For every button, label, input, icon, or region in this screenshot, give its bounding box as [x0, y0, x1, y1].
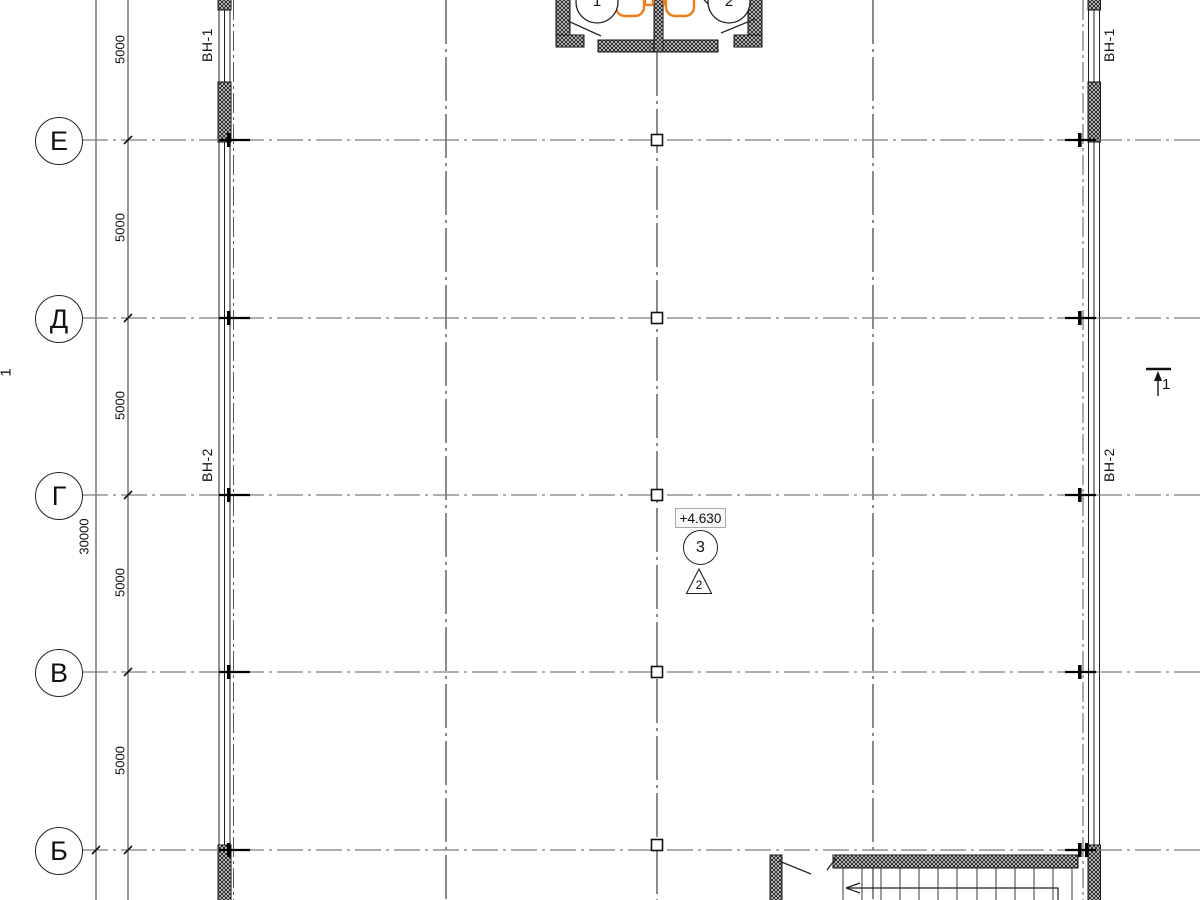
entry-detail-number-1: 1: [588, 0, 606, 9]
elevation-marker: +4.630: [675, 508, 726, 528]
axis-bubble-e: Е: [35, 117, 83, 165]
axis-bubble-g: Г: [35, 472, 83, 520]
dim-bay-4: 5000: [114, 553, 127, 613]
axis-label: Г: [52, 481, 67, 512]
axis-label: Е: [50, 126, 68, 157]
floor-plan-drawing: [0, 0, 1200, 900]
axis-label: В: [50, 658, 68, 689]
dim-bay-2: 5000: [114, 198, 127, 258]
revision-number: 2: [691, 579, 707, 591]
elevation-value: +4.630: [680, 511, 722, 526]
dim-bay-1: 5000: [114, 20, 127, 80]
window-tag-right-upper: ВН-1: [1102, 15, 1116, 75]
window-tag-left-lower: ВН-2: [200, 435, 214, 495]
node-number: 3: [696, 539, 705, 557]
section-number-left: 1: [0, 368, 14, 376]
section-number-right: 1: [1162, 377, 1170, 392]
axis-label: Д: [50, 304, 68, 335]
staircase: [770, 855, 1078, 900]
entry-detail-number-2: 2: [720, 0, 738, 9]
dim-bay-3: 5000: [114, 376, 127, 436]
axis-label: Б: [50, 836, 68, 867]
dim-overall: 30000: [78, 507, 91, 567]
window-tag-left-upper: ВН-1: [200, 15, 214, 75]
axis-bubble-d: Д: [35, 295, 83, 343]
node-bubble-3: 3: [683, 530, 718, 565]
axis-bubble-v: В: [35, 649, 83, 697]
axis-bubble-b: Б: [35, 827, 83, 875]
window-tag-right-lower: ВН-2: [1102, 435, 1116, 495]
floor-plan-canvas: Е Д Г В Б 5000 5000 5000 5000 5000 30000…: [0, 0, 1200, 900]
dim-bay-5: 5000: [114, 731, 127, 791]
